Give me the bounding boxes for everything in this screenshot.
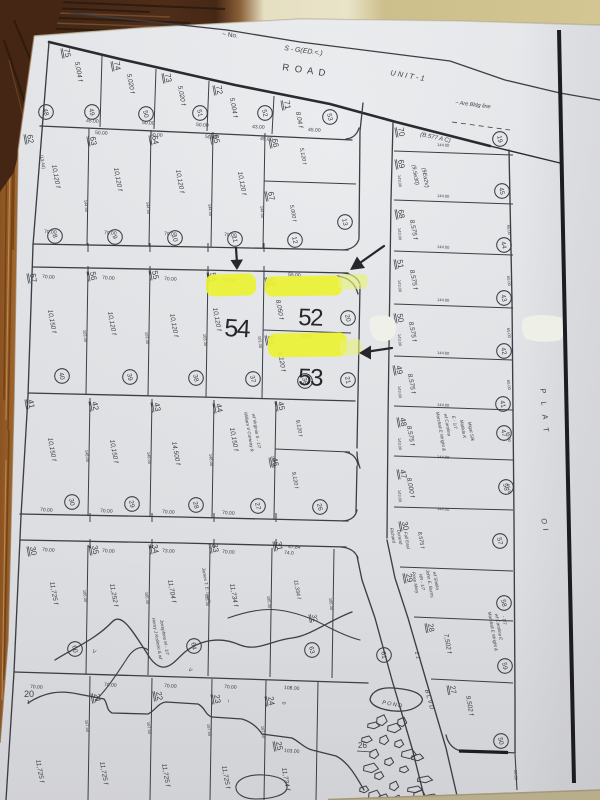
svg-text:70.00: 70.00 [164, 231, 177, 238]
svg-text:103.00: 103.00 [284, 748, 300, 755]
svg-text:70.00: 70.00 [30, 684, 43, 691]
svg-text:53: 53 [298, 364, 324, 392]
svg-text:43.00: 43.00 [252, 124, 265, 131]
svg-text:70.00: 70.00 [44, 229, 57, 236]
svg-text:144.00: 144.00 [437, 506, 450, 512]
svg-text:144.00: 144.00 [437, 142, 450, 148]
svg-text:70.00: 70.00 [222, 549, 235, 556]
svg-text:70.00: 70.00 [224, 232, 237, 239]
svg-text:143.00: 143.00 [397, 386, 403, 399]
svg-text:45.00: 45.00 [308, 127, 321, 134]
svg-text:143.00: 143.00 [397, 490, 403, 503]
svg-text:50.00: 50.00 [196, 122, 209, 129]
svg-text:70.00: 70.00 [40, 507, 53, 514]
svg-text:54: 54 [224, 314, 252, 343]
svg-text:144.00: 144.00 [437, 193, 450, 199]
svg-text:108.00: 108.00 [284, 685, 300, 692]
svg-text:143.00: 143.00 [397, 334, 403, 347]
svg-text:52: 52 [298, 304, 324, 332]
svg-text:70.00: 70.00 [42, 274, 55, 281]
svg-text:70.00: 70.00 [104, 230, 117, 237]
svg-text:45.00: 45.00 [86, 118, 99, 125]
svg-text:70.00: 70.00 [222, 510, 235, 517]
svg-text:74.0: 74.0 [284, 550, 294, 557]
svg-text:144.00: 144.00 [437, 402, 450, 408]
svg-text:144.00: 144.00 [437, 454, 450, 460]
svg-text:70.00: 70.00 [162, 509, 175, 516]
svg-text:143.00: 143.00 [397, 438, 403, 451]
svg-text:73.00: 73.00 [162, 548, 175, 555]
svg-text:20: 20 [24, 689, 34, 699]
svg-text:144.00: 144.00 [437, 297, 450, 303]
svg-text:70.00: 70.00 [164, 683, 177, 690]
svg-text:144.00: 144.00 [437, 350, 450, 356]
svg-text:70.00: 70.00 [100, 508, 113, 515]
svg-text:50.00: 50.00 [142, 120, 155, 127]
svg-text:70.00: 70.00 [164, 276, 177, 283]
svg-text:144.00: 144.00 [437, 244, 450, 250]
svg-text:70.00: 70.00 [102, 275, 115, 282]
svg-text:143.00: 143.00 [397, 175, 403, 188]
svg-text:70.00: 70.00 [224, 684, 237, 691]
svg-text:143.00: 143.00 [397, 280, 403, 293]
svg-text:70.00: 70.00 [102, 548, 115, 555]
svg-text:70.00: 70.00 [42, 547, 55, 554]
svg-text:143.00: 143.00 [397, 228, 403, 241]
svg-text:26.35: 26.35 [513, 770, 519, 781]
